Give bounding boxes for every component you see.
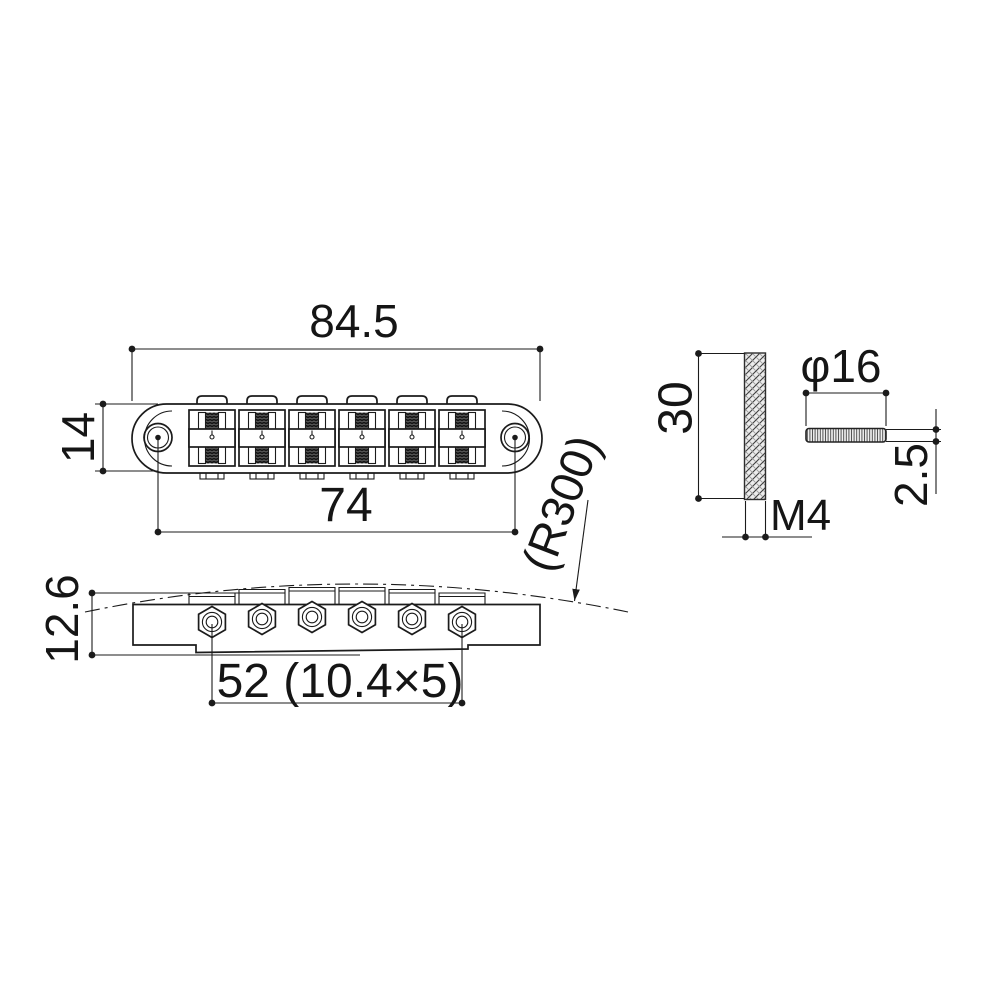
bridge-top-view: 84.5 14 74	[52, 295, 543, 535]
dim-stud-length: 30	[650, 350, 745, 502]
dim-thread-size-label: M4	[770, 491, 831, 540]
dim-string-spacing-label: 52 (10.4×5)	[217, 655, 464, 708]
drawing-page: 84.5 14 74	[0, 0, 1000, 1000]
dim-body-depth-label: 14	[52, 412, 104, 463]
thumbwheel-knurled-edge	[806, 429, 886, 443]
side-body-outline	[133, 605, 540, 653]
dim-stud-length-label: 30	[650, 381, 703, 434]
thumbwheel: φ16 2.5	[801, 340, 942, 507]
dim-side-height-label: 12.6	[36, 574, 88, 664]
dim-overall-width-label: 84.5	[309, 295, 399, 347]
dim-overall-width: 84.5	[129, 295, 544, 401]
dim-wheel-diameter: φ16	[801, 340, 890, 426]
bridge-technical-drawing: 84.5 14 74	[0, 0, 1000, 1000]
dim-wheel-thickness-label: 2.5	[885, 443, 937, 507]
stud-threaded-rod	[745, 353, 766, 500]
dim-post-spacing-label: 74	[319, 479, 372, 532]
dim-wheel-diameter-label: φ16	[801, 340, 882, 392]
dim-wheel-thickness: 2.5	[885, 409, 941, 507]
